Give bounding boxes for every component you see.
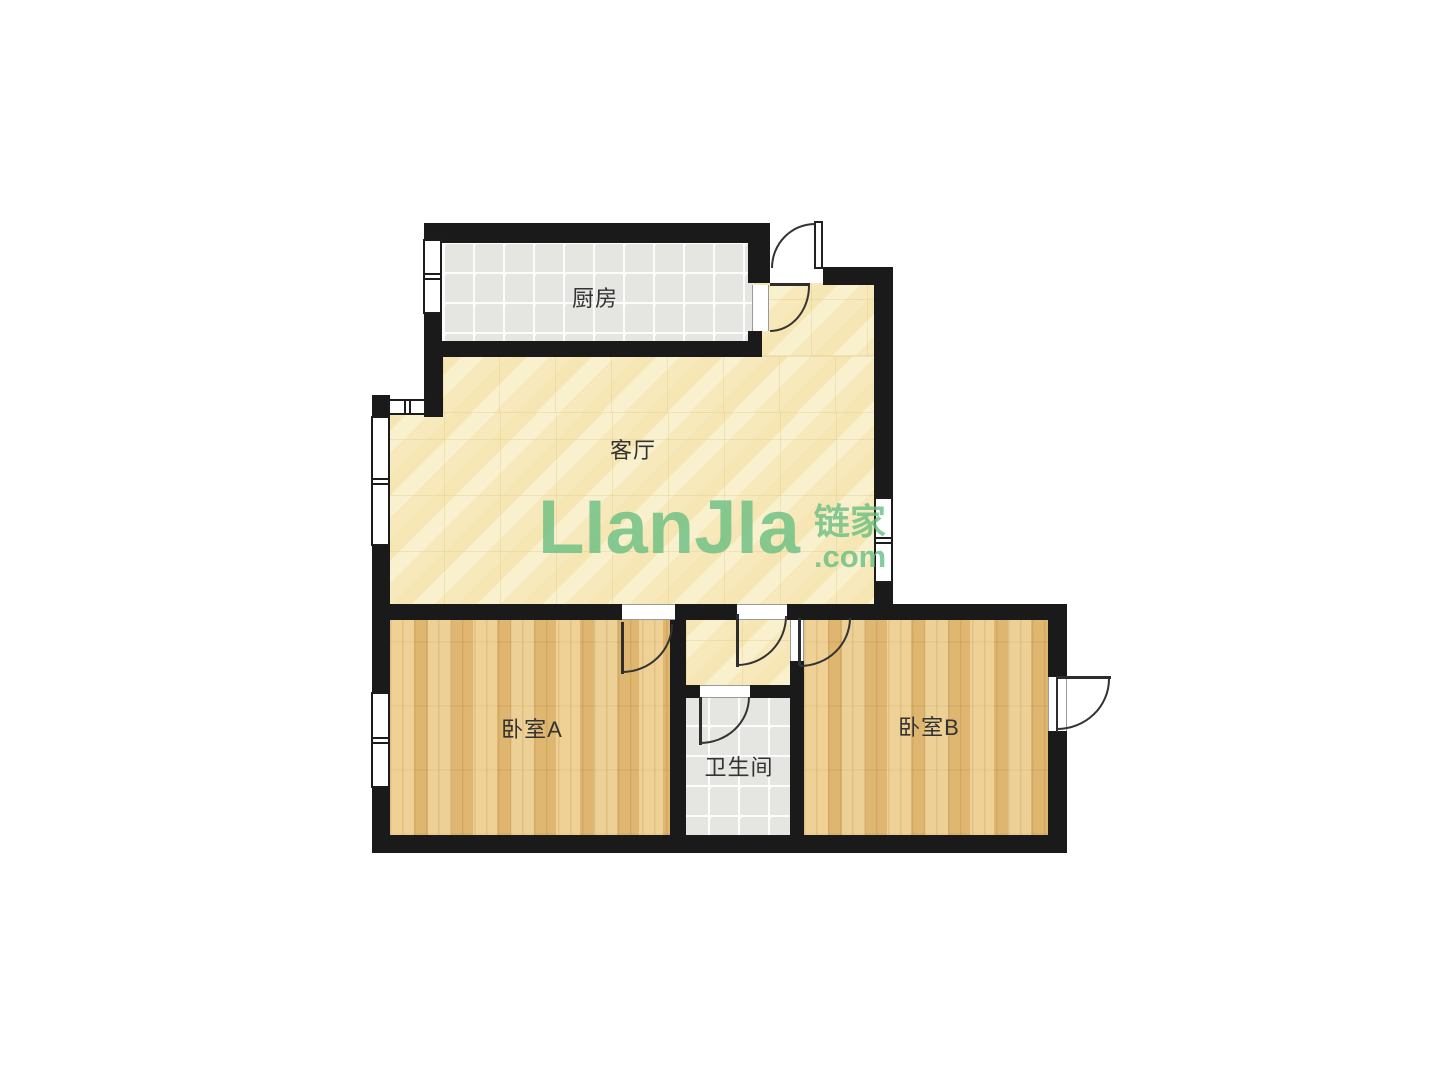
wall-bathroom-top-left	[670, 685, 700, 698]
room-label-bathroom: 卫生间	[704, 750, 773, 782]
entry-door-arc	[771, 223, 815, 268]
wall-entry-block	[748, 223, 770, 283]
window-mullion	[425, 273, 440, 280]
exterior-door-arc	[1057, 679, 1110, 730]
room-label-bedroom-a: 卧室A	[501, 712, 563, 744]
window-mullion	[373, 737, 388, 744]
window-mullion	[373, 478, 388, 485]
window-living-right	[874, 497, 893, 583]
threshold-bedroom-a-door	[622, 604, 675, 620]
window-mullion	[876, 537, 891, 544]
window-kitchen-left	[423, 239, 442, 314]
wall-bedrooma-bath-divider	[670, 604, 686, 853]
wall-bath-bedroomb-divider	[790, 661, 804, 853]
threshold-kitchen-door	[752, 285, 769, 331]
entry-door-leaf	[814, 221, 823, 269]
wall-living-bottom-a	[372, 604, 622, 620]
window-living-step	[388, 399, 426, 415]
room-label-kitchen: 厨房	[572, 281, 618, 313]
window-bedroom-a-left	[371, 692, 390, 788]
room-label-living: 客厅	[610, 433, 656, 465]
wall-bedroom-b-right-upper	[1048, 604, 1067, 678]
floor-living-upper	[443, 356, 874, 413]
wall-bottom	[372, 835, 1067, 853]
wall-kitchen-top	[424, 223, 770, 243]
wall-kitchen-left-lower	[424, 356, 443, 417]
wall-kitchen-right-stub	[748, 331, 762, 342]
room-label-bedroom-b: 卧室B	[898, 710, 960, 742]
window-mullion	[404, 401, 411, 413]
wall-kitchen-bottom	[424, 341, 762, 357]
floor-plan-canvas: 厨房 客厅 卧室A 卫生间 卧室B LIanJIa 链家 .com	[0, 0, 1440, 1080]
window-living-left	[371, 416, 390, 546]
